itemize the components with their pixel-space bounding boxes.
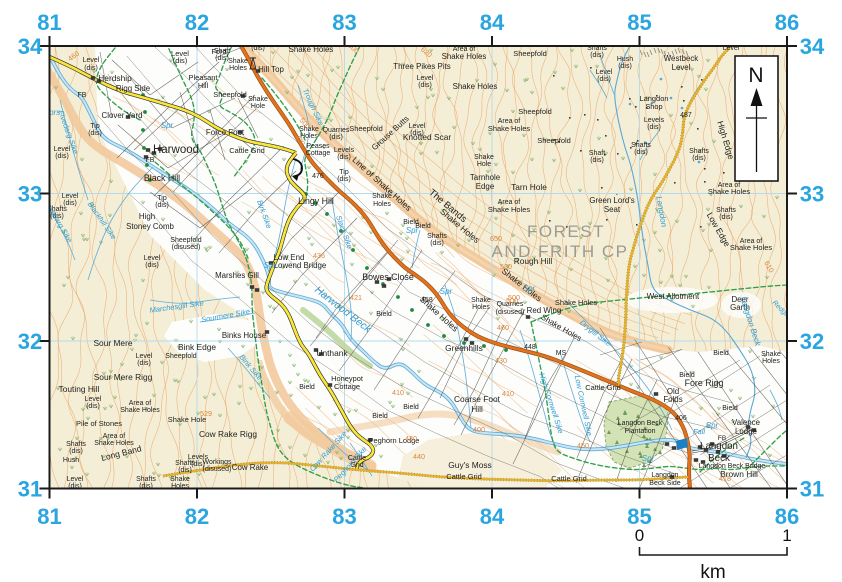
svg-text:Shafts: Shafts [66,441,86,448]
svg-text:Cattle Grid: Cattle Grid [585,383,621,392]
svg-text:(dis): (dis) [155,202,169,209]
svg-text:Westbeck: Westbeck [664,54,699,63]
svg-text:FB: FB [718,435,726,442]
svg-text:Sheepfold: Sheepfold [537,136,571,145]
svg-text:Hill: Hill [471,404,483,414]
svg-text:Shaft: Shaft [589,150,605,157]
svg-text:Level: Level [144,255,161,262]
svg-text:418: 418 [719,474,731,483]
svg-text:448: 448 [524,344,536,351]
svg-text:Bield: Bield [403,219,419,226]
svg-text:Shake: Shake [471,297,491,304]
svg-text:Ford: Ford [211,47,226,56]
svg-text:32: 32 [800,329,824,354]
svg-text:84: 84 [480,504,505,529]
svg-text:Bield: Bield [713,350,729,357]
svg-text:(disused): (disused) [172,244,201,251]
svg-text:Shake Holes: Shake Holes [488,124,530,133]
svg-text:Shop: Shop [645,102,662,111]
svg-text:Langdon: Langdon [700,441,738,452]
svg-text:Spr: Spr [161,121,174,130]
svg-text:Level: Level [54,146,71,153]
svg-text:Plantation: Plantation [625,428,656,435]
svg-text:(dis): (dis) [647,124,661,131]
svg-text:400: 400 [473,425,485,434]
svg-text:Tarnhole: Tarnhole [470,173,501,182]
svg-text:82: 82 [185,504,209,529]
svg-text:86: 86 [775,10,799,35]
svg-text:85: 85 [627,10,651,35]
svg-text:Lodge: Lodge [735,427,758,436]
svg-text:Bield: Bield [679,372,695,379]
svg-text:km: km [700,562,725,582]
svg-text:410: 410 [502,389,514,398]
svg-text:Sheepfold: Sheepfold [349,124,383,133]
svg-text:Quarries: Quarries [323,127,350,134]
svg-text:Sheepfold: Sheepfold [170,237,202,244]
svg-text:476: 476 [312,173,324,180]
svg-text:AND FRITH CP: AND FRITH CP [492,242,629,261]
svg-text:Area of: Area of [129,400,152,407]
svg-text:Lingy Hill: Lingy Hill [298,196,334,206]
svg-text:Area of: Area of [103,433,126,440]
svg-text:Level: Level [409,123,426,130]
svg-text:Levels: Levels [334,147,355,154]
svg-text:Holes: Holes [472,304,490,311]
svg-text:Stoney Comb: Stoney Comb [126,222,174,231]
svg-text:N: N [748,64,763,87]
svg-text:(dis): (dis) [55,153,69,160]
svg-text:Fore Rigg: Fore Rigg [685,378,724,388]
svg-text:Level: Level [596,69,613,76]
svg-text:Cattle Grid: Cattle Grid [446,472,482,481]
svg-text:Levels: Levels [644,117,665,124]
svg-text:FB: FB [146,157,155,164]
svg-text:31: 31 [800,477,824,502]
svg-text:Shake Holes: Shake Holes [453,82,498,91]
svg-text:Level: Level [83,57,100,64]
svg-text:33: 33 [800,182,824,207]
svg-text:Shake Holes: Shake Holes [730,243,772,252]
svg-text:Unthank: Unthank [316,348,348,358]
svg-text:Black Hill: Black Hill [144,173,180,183]
svg-text:West Allotment: West Allotment [647,292,700,301]
svg-text:0: 0 [635,526,644,545]
svg-text:Hole: Hole [477,161,491,168]
svg-text:Peases: Peases [306,143,330,150]
svg-text:Hush: Hush [617,56,633,63]
svg-text:(dis): (dis) [597,76,611,83]
svg-text:34: 34 [800,34,825,59]
svg-text:Sheepfold: Sheepfold [518,107,552,116]
svg-text:Hill Top: Hill Top [258,65,284,74]
svg-text:32: 32 [18,329,42,354]
svg-text:Tarn Hole: Tarn Hole [511,182,547,192]
svg-text:Bield: Bield [376,311,392,318]
svg-text:(dis): (dis) [88,130,102,137]
svg-text:Level: Level [417,75,434,82]
svg-text:Shake: Shake [170,476,190,483]
svg-text:Shake Holes: Shake Holes [555,298,597,307]
svg-text:Cottage: Cottage [334,382,360,391]
svg-text:500: 500 [506,296,518,305]
svg-text:Shake Holes: Shake Holes [488,205,530,214]
svg-text:81: 81 [37,10,61,35]
svg-text:460: 460 [497,323,509,332]
svg-text:Hill: Hill [198,81,209,90]
svg-text:(dis): (dis) [719,214,733,221]
svg-text:Bield: Bield [372,413,388,420]
svg-text:Sheepfold: Sheepfold [513,49,547,58]
svg-text:Levels: Levels [188,454,209,461]
svg-text:82: 82 [185,10,209,35]
svg-text:Hole: Hole [251,103,265,110]
svg-text:34: 34 [18,34,43,59]
svg-text:(dis): (dis) [418,82,432,89]
svg-text:(dis): (dis) [84,65,98,72]
svg-text:Shafts: Shafts [427,233,447,240]
svg-text:529: 529 [200,409,212,418]
svg-text:(dis): (dis) [337,154,351,161]
svg-text:Tip: Tip [157,195,167,202]
svg-text:(dis): (dis) [86,403,100,410]
svg-text:Lowend Bridge: Lowend Bridge [274,261,327,270]
svg-text:Hush: Hush [63,457,79,464]
svg-text:33: 33 [18,182,42,207]
svg-text:(dis): (dis) [329,134,343,141]
svg-text:Touting Hill: Touting Hill [59,384,100,394]
svg-text:Langdon Beck: Langdon Beck [618,420,663,427]
svg-text:Pile of Stones: Pile of Stones [76,419,122,428]
svg-text:High: High [139,212,155,221]
svg-text:Shake: Shake [761,351,781,358]
svg-text:Shafts: Shafts [689,148,709,155]
svg-text:420: 420 [405,434,417,443]
svg-text:Tip: Tip [339,169,349,176]
svg-text:410: 410 [392,388,404,397]
svg-text:Folds: Folds [663,395,682,404]
svg-text:31: 31 [18,477,42,502]
svg-text:83: 83 [332,10,356,35]
svg-text:Edge: Edge [476,182,495,191]
svg-text:Seat: Seat [604,205,621,214]
svg-text:Greenhills: Greenhills [445,343,483,353]
svg-text:Langdon: Langdon [651,472,678,479]
svg-text:406: 406 [675,415,687,422]
svg-text:487: 487 [680,112,692,119]
svg-text:530: 530 [500,262,512,271]
svg-text:Bink Edge: Bink Edge [178,342,216,352]
svg-text:Bowes Close: Bowes Close [362,272,414,282]
svg-text:84: 84 [480,10,505,35]
svg-text:(dis): (dis) [618,63,632,70]
svg-text:Holes: Holes [373,201,391,208]
svg-text:Spr: Spr [642,454,655,463]
svg-text:Tip: Tip [90,123,100,130]
svg-text:FB: FB [78,92,87,99]
svg-text:(dis): (dis) [173,56,188,65]
svg-text:450: 450 [577,441,589,450]
svg-text:Bield: Bield [722,405,738,412]
svg-text:Holes: Holes [762,358,780,365]
svg-text:Rigg Side: Rigg Side [116,84,151,93]
svg-text:Green Lord's: Green Lord's [589,196,634,205]
svg-text:Spr: Spr [523,284,536,293]
svg-text:Spr: Spr [706,421,719,430]
svg-text:Shafts: Shafts [716,207,736,214]
svg-text:(dis): (dis) [137,360,151,367]
svg-text:Fall: Fall [693,427,705,436]
svg-text:Level: Level [136,353,153,360]
svg-text:Shake: Shake [248,96,268,103]
svg-text:Spr: Spr [406,226,419,235]
svg-text:Cow Rake: Cow Rake [232,463,269,472]
svg-text:Valence: Valence [732,418,761,427]
svg-text:Bield: Bield [299,384,315,391]
svg-text:MS: MS [556,350,567,357]
svg-text:(dis): (dis) [430,240,444,247]
svg-text:Sheepfold: Sheepfold [213,90,247,99]
svg-text:Sour Mere: Sour Mere [93,338,132,348]
svg-text:Force Foot: Force Foot [206,128,245,137]
svg-text:(dis): (dis) [590,157,604,164]
svg-text:(dis): (dis) [69,448,83,455]
svg-text:Sour Mere Rigg: Sour Mere Rigg [94,372,153,382]
svg-text:(dis): (dis) [634,149,648,156]
svg-text:(dis): (dis) [337,176,351,183]
svg-text:Clover Yard: Clover Yard [102,111,143,120]
svg-text:Cow Rake Rigg: Cow Rake Rigg [199,429,257,439]
svg-text:Spr: Spr [440,287,453,296]
svg-text:421: 421 [350,293,362,302]
svg-text:Cottage: Cottage [306,150,331,157]
svg-text:Coarse Foot: Coarse Foot [454,394,501,404]
svg-text:Beck Side: Beck Side [649,480,681,487]
svg-text:(dis): (dis) [692,155,706,162]
svg-text:Harwood: Harwood [153,144,199,156]
svg-text:1: 1 [782,526,791,545]
svg-text:Level: Level [85,396,102,403]
svg-text:440: 440 [413,452,425,461]
svg-text:Binks House: Binks House [222,331,267,340]
svg-text:Herdship: Herdship [98,73,132,83]
svg-text:Level: Level [67,476,84,483]
svg-text:81: 81 [37,504,61,529]
svg-text:Holes: Holes [229,65,247,72]
svg-text:Shake Holes: Shake Holes [442,52,487,61]
svg-text:(dis): (dis) [215,55,229,62]
svg-text:83: 83 [332,504,356,529]
svg-text:(dis): (dis) [590,52,604,59]
svg-text:Shafts: Shafts [631,142,651,149]
svg-text:Cattle Grid: Cattle Grid [551,474,587,483]
svg-text:Level: Level [62,193,79,200]
svg-text:436: 436 [313,251,325,260]
svg-text:FOREST: FOREST [527,222,605,241]
svg-text:(dis): (dis) [145,262,159,269]
svg-text:Cattle Grid: Cattle Grid [229,146,265,155]
svg-text:Sheepfold: Sheepfold [165,353,197,360]
svg-text:Level: Level [672,63,691,72]
svg-text:Shake Holes: Shake Holes [708,187,750,196]
svg-text:Guy's Moss: Guy's Moss [448,460,491,470]
svg-text:(disused): (disused) [203,466,232,473]
svg-text:Shake: Shake [474,154,494,161]
svg-text:Marshes Gill: Marshes Gill [215,271,259,280]
svg-text:Bield: Bield [403,404,419,411]
svg-text:Spr: Spr [264,261,277,270]
svg-text:(dis): (dis) [410,130,424,137]
svg-text:(dis): (dis) [178,467,192,474]
svg-text:Shake: Shake [228,58,248,65]
svg-text:430: 430 [495,356,507,365]
svg-text:Three Pikes Pits: Three Pikes Pits [393,62,451,71]
svg-text:Shafts: Shafts [136,476,156,483]
svg-text:Shake Holes: Shake Holes [120,407,160,414]
svg-text:(disused): (disused) [496,309,525,316]
svg-text:(dis): (dis) [191,461,205,468]
